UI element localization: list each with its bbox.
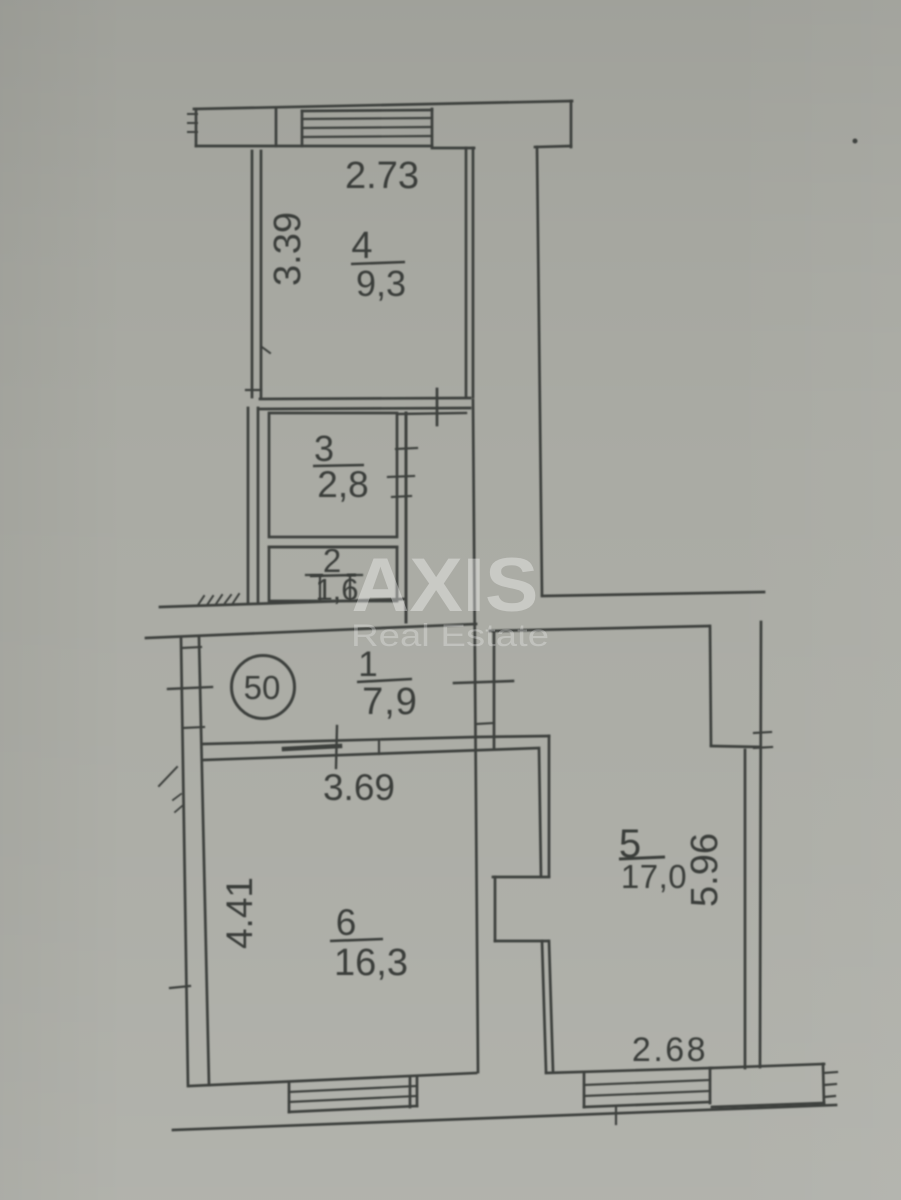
svg-text:9,3: 9,3 bbox=[356, 263, 406, 304]
svg-text:3.69: 3.69 bbox=[323, 767, 395, 808]
svg-text:Real Estate: Real Estate bbox=[351, 617, 549, 653]
svg-text:17,0: 17,0 bbox=[621, 858, 687, 895]
svg-text:6: 6 bbox=[336, 902, 357, 943]
svg-text:2,8: 2,8 bbox=[317, 464, 368, 505]
svg-text:2.68: 2.68 bbox=[632, 1031, 708, 1069]
svg-text:7,9: 7,9 bbox=[362, 681, 418, 723]
svg-text:3: 3 bbox=[314, 428, 334, 469]
svg-text:5.96: 5.96 bbox=[684, 833, 726, 907]
svg-text:AXIS: AXIS bbox=[352, 543, 539, 628]
svg-text:2.73: 2.73 bbox=[345, 155, 419, 197]
svg-text:4.41: 4.41 bbox=[219, 877, 260, 949]
svg-text:16,3: 16,3 bbox=[334, 942, 408, 984]
svg-text:50: 50 bbox=[244, 669, 281, 706]
svg-text:3.39: 3.39 bbox=[267, 212, 309, 286]
svg-text:4: 4 bbox=[351, 225, 372, 267]
